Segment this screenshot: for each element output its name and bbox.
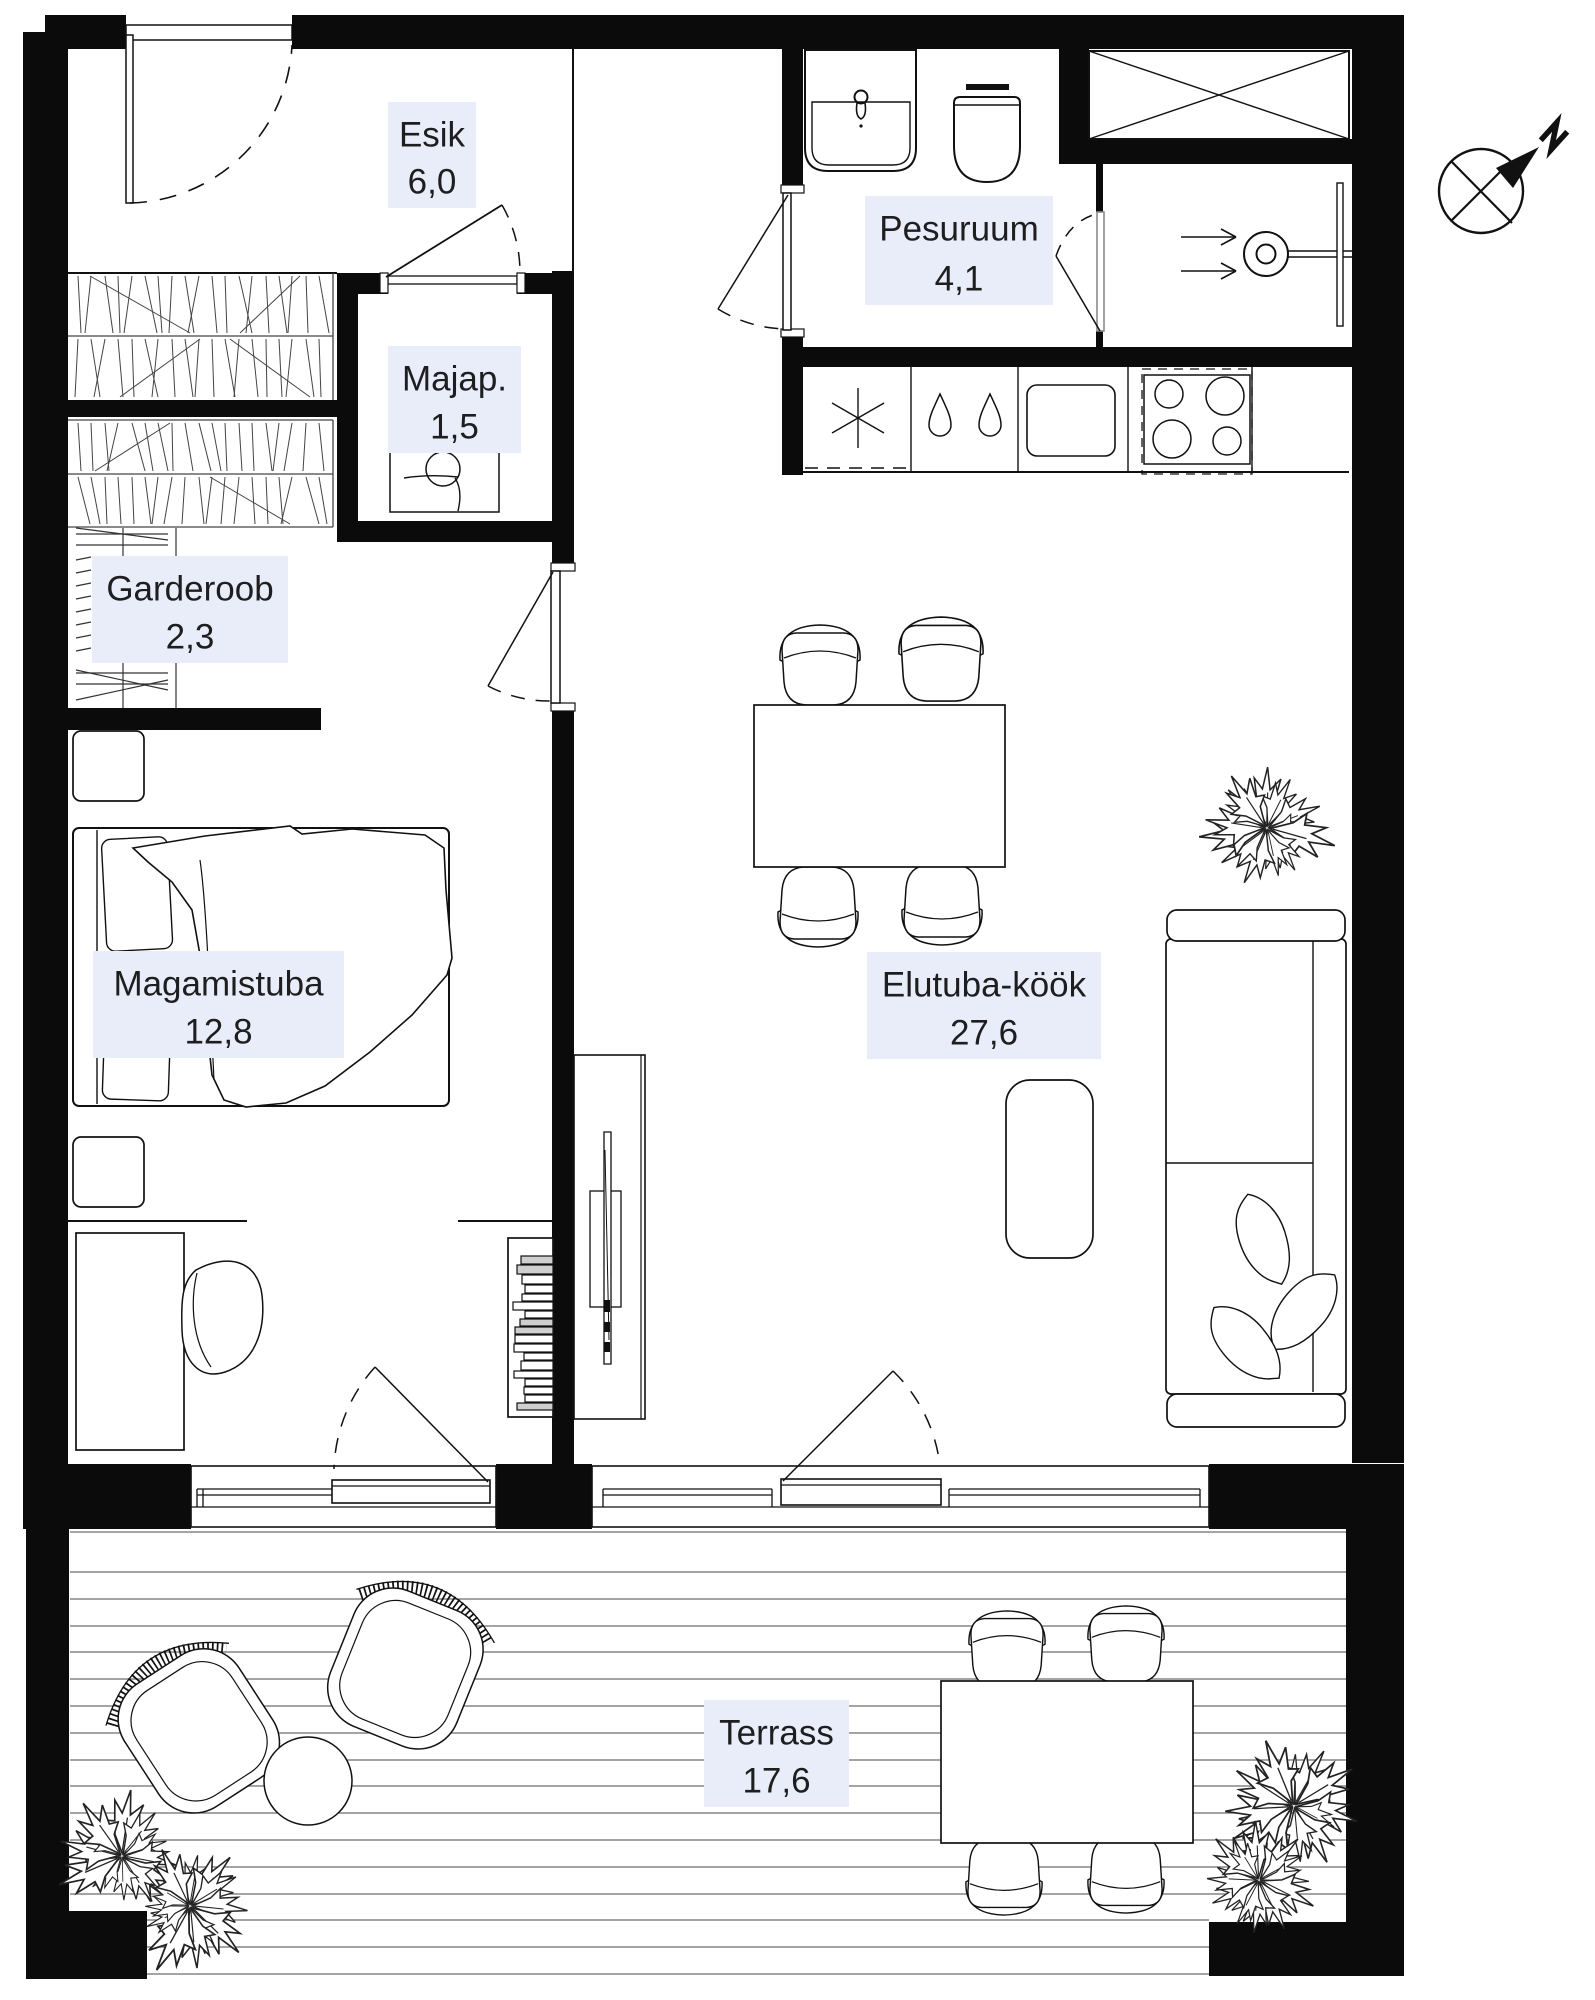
svg-text:2,3: 2,3 [166,618,215,657]
svg-text:Esik: Esik [399,116,466,155]
svg-text:Terrass: Terrass [719,1714,834,1753]
svg-text:1,5: 1,5 [430,408,479,447]
svg-text:Magamistuba: Magamistuba [113,965,324,1004]
svg-text:Pesuruum: Pesuruum [879,210,1039,249]
svg-text:17,6: 17,6 [742,1762,810,1801]
svg-text:Garderoob: Garderoob [106,570,273,609]
svg-text:27,6: 27,6 [950,1014,1018,1053]
svg-text:12,8: 12,8 [184,1013,252,1052]
svg-text:4,1: 4,1 [935,260,984,299]
svg-text:Elutuba-köök: Elutuba-köök [882,966,1087,1005]
svg-text:6,0: 6,0 [408,163,457,202]
svg-text:Majap.: Majap. [402,360,507,399]
